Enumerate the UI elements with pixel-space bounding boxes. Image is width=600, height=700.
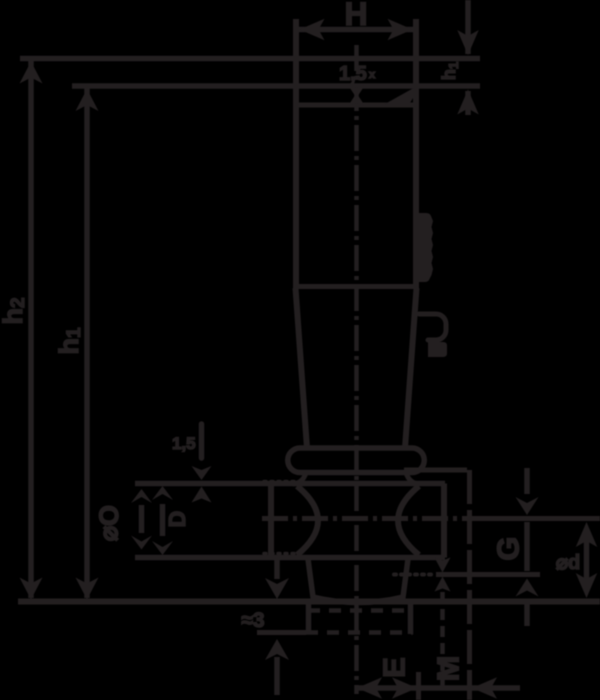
svg-text:h1: h1 <box>54 327 85 355</box>
svg-text:h2: h2 <box>0 297 29 324</box>
svg-text:⌀d: ⌀d <box>556 552 580 574</box>
svg-text:1,5: 1,5 <box>339 63 367 85</box>
svg-text:H: H <box>344 0 367 32</box>
svg-text:x: x <box>369 69 376 81</box>
svg-text:E: E <box>377 657 412 678</box>
svg-text:h1: h1 <box>439 62 461 80</box>
svg-text:D: D <box>164 511 190 528</box>
svg-text:G: G <box>491 536 526 560</box>
svg-text:M: M <box>431 656 466 682</box>
svg-text:⌀O: ⌀O <box>94 505 124 541</box>
svg-text:≈3: ≈3 <box>241 609 264 632</box>
svg-text:1,5: 1,5 <box>172 434 196 453</box>
